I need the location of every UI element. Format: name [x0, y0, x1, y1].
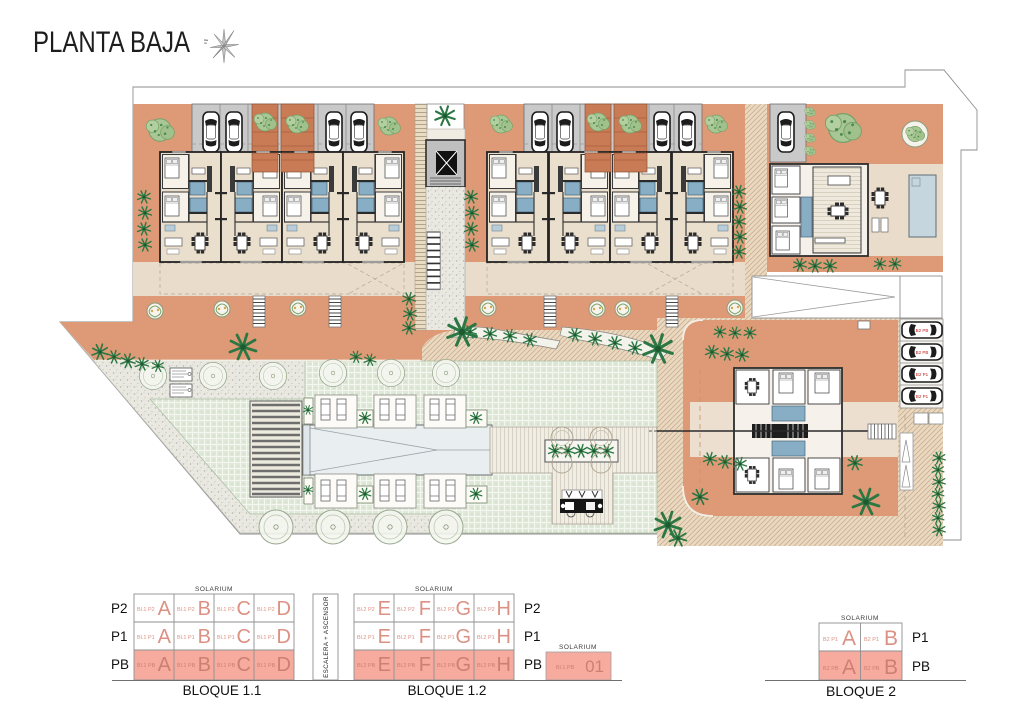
- svg-text:PB: PB: [111, 657, 129, 672]
- svg-text:B2 PB: B2 PB: [916, 350, 929, 355]
- svg-text:P2: P2: [524, 601, 541, 616]
- svg-text:B2 PB: B2 PB: [916, 328, 929, 333]
- svg-text:Bl.1 PB: Bl.1 PB: [137, 663, 156, 669]
- svg-text:Bl.2 P1: Bl.2 P1: [397, 635, 415, 641]
- svg-text:BLOQUE 1.1: BLOQUE 1.1: [183, 683, 262, 698]
- svg-text:01: 01: [585, 657, 604, 676]
- svg-text:D: D: [277, 598, 291, 620]
- svg-text:H: H: [497, 598, 511, 620]
- svg-text:P1: P1: [524, 629, 541, 644]
- svg-text:P2: P2: [111, 601, 128, 616]
- svg-text:Bl.1 P1: Bl.1 P1: [217, 635, 235, 641]
- svg-text:B2 PB: B2 PB: [823, 666, 839, 672]
- svg-text:E: E: [378, 626, 391, 648]
- svg-text:P1: P1: [111, 629, 128, 644]
- svg-text:Bl.2 P1: Bl.2 P1: [477, 635, 495, 641]
- svg-text:D: D: [277, 626, 291, 648]
- svg-text:F: F: [419, 654, 431, 676]
- svg-text:Bl.1 PB: Bl.1 PB: [257, 663, 276, 669]
- svg-text:H: H: [497, 654, 511, 676]
- svg-text:Bl.2 P1: Bl.2 P1: [437, 635, 455, 641]
- svg-text:Bl.1 P2: Bl.1 P2: [177, 607, 195, 613]
- svg-text:B: B: [884, 656, 898, 679]
- svg-text:ESCALERA + ASCENSOR: ESCALERA + ASCENSOR: [323, 596, 330, 678]
- svg-text:P1: P1: [912, 630, 929, 645]
- svg-text:A: A: [842, 656, 856, 679]
- svg-text:Bl.1 PB: Bl.1 PB: [556, 665, 575, 671]
- svg-text:B2 P1: B2 P1: [823, 637, 838, 643]
- svg-text:B: B: [198, 626, 211, 648]
- svg-text:SOLARIUM: SOLARIUM: [559, 644, 597, 651]
- svg-text:PLANTA BAJA: PLANTA BAJA: [33, 26, 190, 59]
- svg-text:C: C: [237, 626, 251, 648]
- svg-text:B: B: [198, 598, 211, 620]
- svg-text:C: C: [237, 598, 251, 620]
- svg-text:Bl.1 P2: Bl.1 P2: [137, 607, 155, 613]
- svg-text:A: A: [158, 626, 172, 648]
- svg-text:BLOQUE 2: BLOQUE 2: [826, 683, 896, 699]
- svg-text:PB: PB: [524, 657, 542, 672]
- svg-text:BLOQUE 1.2: BLOQUE 1.2: [408, 683, 487, 698]
- svg-text:A: A: [158, 654, 172, 676]
- svg-text:E: E: [378, 654, 391, 676]
- svg-text:Bl.2 P2: Bl.2 P2: [477, 607, 495, 613]
- svg-text:SOLARIUM: SOLARIUM: [841, 615, 879, 622]
- svg-text:SOLARIUM: SOLARIUM: [195, 586, 233, 593]
- svg-text:B2 P1: B2 P1: [864, 637, 879, 643]
- svg-text:Bl.2 P2: Bl.2 P2: [397, 607, 415, 613]
- svg-text:SOLARIUM: SOLARIUM: [415, 586, 453, 593]
- svg-text:B2 PB: B2 PB: [864, 666, 880, 672]
- svg-text:PB: PB: [912, 659, 930, 674]
- svg-text:F: F: [419, 626, 431, 648]
- svg-text:G: G: [455, 626, 471, 648]
- svg-text:Bl.2 P2: Bl.2 P2: [357, 607, 375, 613]
- svg-text:Bl.2 P1: Bl.2 P1: [357, 635, 375, 641]
- svg-text:A: A: [158, 598, 172, 620]
- svg-text:D: D: [277, 654, 291, 676]
- svg-text:Bl.2 PB: Bl.2 PB: [437, 663, 456, 669]
- svg-text:B2 P1: B2 P1: [916, 394, 929, 399]
- svg-text:B: B: [884, 627, 898, 650]
- svg-text:G: G: [455, 654, 471, 676]
- svg-text:Bl.1 PB: Bl.1 PB: [177, 663, 196, 669]
- svg-text:C: C: [237, 654, 251, 676]
- svg-text:Bl.1 P1: Bl.1 P1: [257, 635, 275, 641]
- svg-text:Bl.1 P2: Bl.1 P2: [217, 607, 235, 613]
- svg-text:F: F: [419, 598, 431, 620]
- svg-text:G: G: [455, 598, 471, 620]
- svg-text:Bl.2 P2: Bl.2 P2: [437, 607, 455, 613]
- svg-text:Bl.1 PB: Bl.1 PB: [217, 663, 236, 669]
- svg-text:Bl.2 PB: Bl.2 PB: [477, 663, 496, 669]
- svg-text:Bl.1 P1: Bl.1 P1: [137, 635, 155, 641]
- svg-text:Bl.1 P2: Bl.1 P2: [257, 607, 275, 613]
- svg-text:B: B: [198, 654, 211, 676]
- svg-text:Bl.2 PB: Bl.2 PB: [357, 663, 376, 669]
- svg-text:B2 P1: B2 P1: [916, 372, 929, 377]
- svg-text:E: E: [378, 598, 391, 620]
- svg-text:H: H: [497, 626, 511, 648]
- svg-text:Bl.2 PB: Bl.2 PB: [397, 663, 416, 669]
- svg-text:Bl.1 P1: Bl.1 P1: [177, 635, 195, 641]
- svg-text:A: A: [842, 627, 856, 650]
